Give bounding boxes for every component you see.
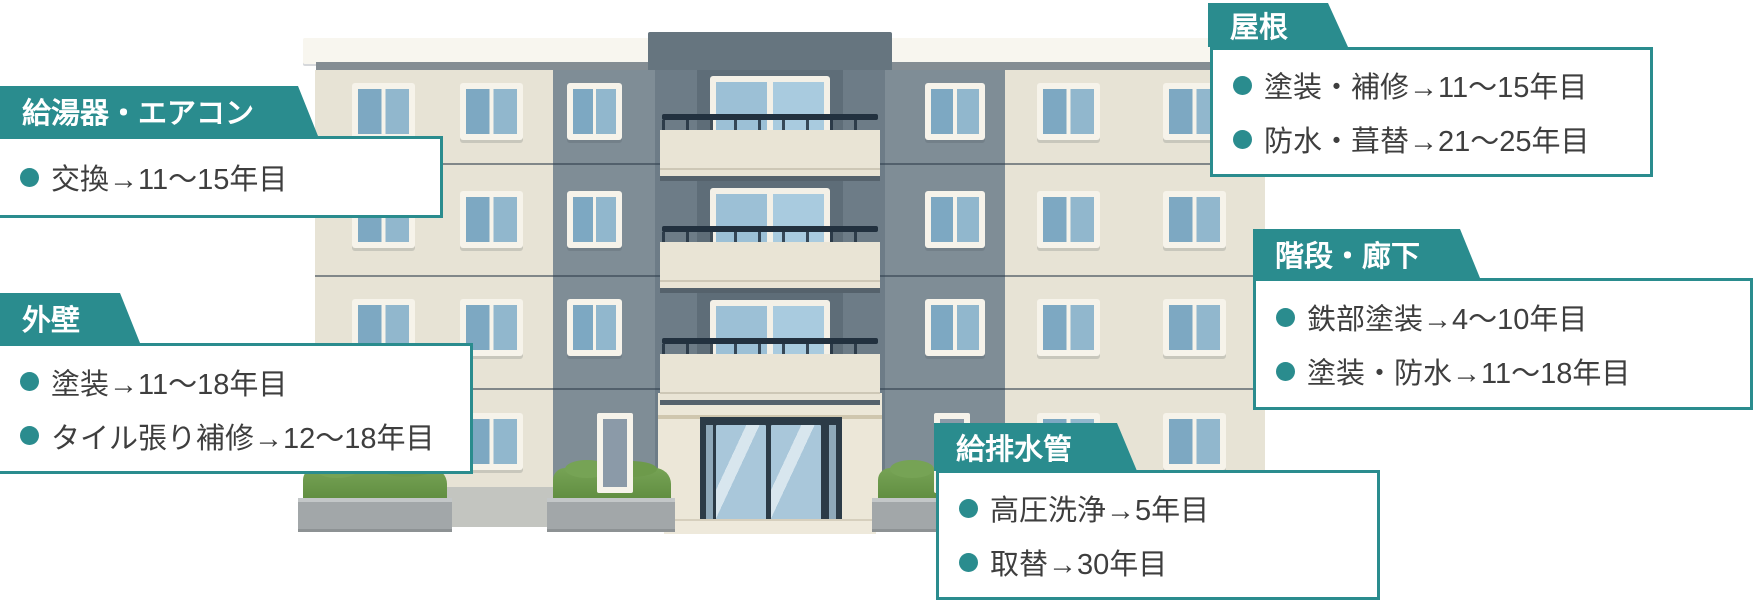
window <box>352 83 415 140</box>
callout-body-plumbing: 高圧洗浄→5年目 取替→30年目 <box>936 470 1380 600</box>
window <box>1037 83 1100 140</box>
window <box>567 191 622 248</box>
maintenance-item: 塗装→11〜18年目 <box>20 361 462 403</box>
maintenance-item-text: 塗装→11〜18年目 <box>51 361 287 403</box>
maintenance-item-text: 防水・葺替→21〜25年目 <box>1264 118 1590 160</box>
callout-title-stairs-corridor: 階段・廊下 <box>1253 229 1480 278</box>
callout-body-roof: 塗装・補修→11〜15年目 防水・葺替→21〜25年目 <box>1210 47 1653 177</box>
bullet-icon <box>20 168 39 187</box>
maintenance-item-text: 高圧洗浄→5年目 <box>990 487 1209 529</box>
bullet-icon <box>1233 130 1252 149</box>
narrow-window <box>597 413 633 493</box>
maintenance-item-text: タイル張り補修→12〜18年目 <box>51 415 435 457</box>
entrance-side-lite <box>829 425 836 521</box>
window <box>567 299 622 356</box>
bullet-icon <box>1276 308 1295 327</box>
balcony-parapet <box>660 130 880 181</box>
maintenance-item: 防水・葺替→21〜25年目 <box>1233 118 1642 160</box>
bullet-icon <box>1233 76 1252 95</box>
window <box>1163 413 1226 470</box>
maintenance-item: 交換→11〜15年目 <box>20 156 432 198</box>
bullet-icon <box>20 372 39 391</box>
callout-title-water-heater-aircon: 給湯器・エアコン <box>0 86 318 136</box>
window <box>1163 191 1226 248</box>
window <box>925 299 985 356</box>
bullet-icon <box>1276 362 1295 381</box>
callout-title-plumbing: 給排水管 <box>934 423 1137 471</box>
center-tower-cap <box>648 32 892 72</box>
maintenance-item: 高圧洗浄→5年目 <box>959 487 1369 529</box>
window <box>1037 299 1100 356</box>
window <box>925 83 985 140</box>
window <box>460 83 523 140</box>
maintenance-item: 塗装・防水→11〜18年目 <box>1276 350 1742 392</box>
entrance-side-lite <box>706 425 713 521</box>
planter <box>298 498 452 532</box>
maintenance-item-text: 鉄部塗装→4〜10年目 <box>1307 296 1587 338</box>
window <box>1037 191 1100 248</box>
bullet-icon <box>959 553 978 572</box>
bullet-icon <box>20 426 39 445</box>
maintenance-item: 塗装・補修→11〜15年目 <box>1233 64 1642 106</box>
maintenance-item-text: 塗装・補修→11〜15年目 <box>1264 64 1587 106</box>
entrance-step <box>664 519 876 534</box>
maintenance-item: タイル張り補修→12〜18年目 <box>20 415 462 457</box>
window <box>1163 299 1226 356</box>
maintenance-infographic: 給湯器・エアコン 交換→11〜15年目 外壁 塗装→11〜18年目 タイル張り補… <box>0 0 1758 602</box>
maintenance-item: 取替→30年目 <box>959 541 1369 583</box>
callout-title-exterior-wall: 外壁 <box>0 293 140 343</box>
window <box>460 191 523 248</box>
entrance-door-glass <box>771 425 821 521</box>
callout-body-stairs-corridor: 鉄部塗装→4〜10年目 塗装・防水→11〜18年目 <box>1253 278 1753 410</box>
callout-body-exterior-wall: 塗装→11〜18年目 タイル張り補修→12〜18年目 <box>0 343 473 474</box>
maintenance-item-text: 取替→30年目 <box>990 541 1167 583</box>
balcony-parapet <box>660 242 880 293</box>
planter <box>547 498 675 532</box>
window <box>925 191 985 248</box>
maintenance-item-text: 交換→11〜15年目 <box>51 156 287 198</box>
entrance-door-glass <box>716 425 766 521</box>
bullet-icon <box>959 499 978 518</box>
callout-title-roof: 屋根 <box>1208 3 1348 47</box>
balcony-parapet <box>660 354 880 405</box>
maintenance-item: 鉄部塗装→4〜10年目 <box>1276 296 1742 338</box>
window <box>567 83 622 140</box>
callout-body-water-heater-aircon: 交換→11〜15年目 <box>0 136 443 218</box>
maintenance-item-text: 塗装・防水→11〜18年目 <box>1307 350 1630 392</box>
